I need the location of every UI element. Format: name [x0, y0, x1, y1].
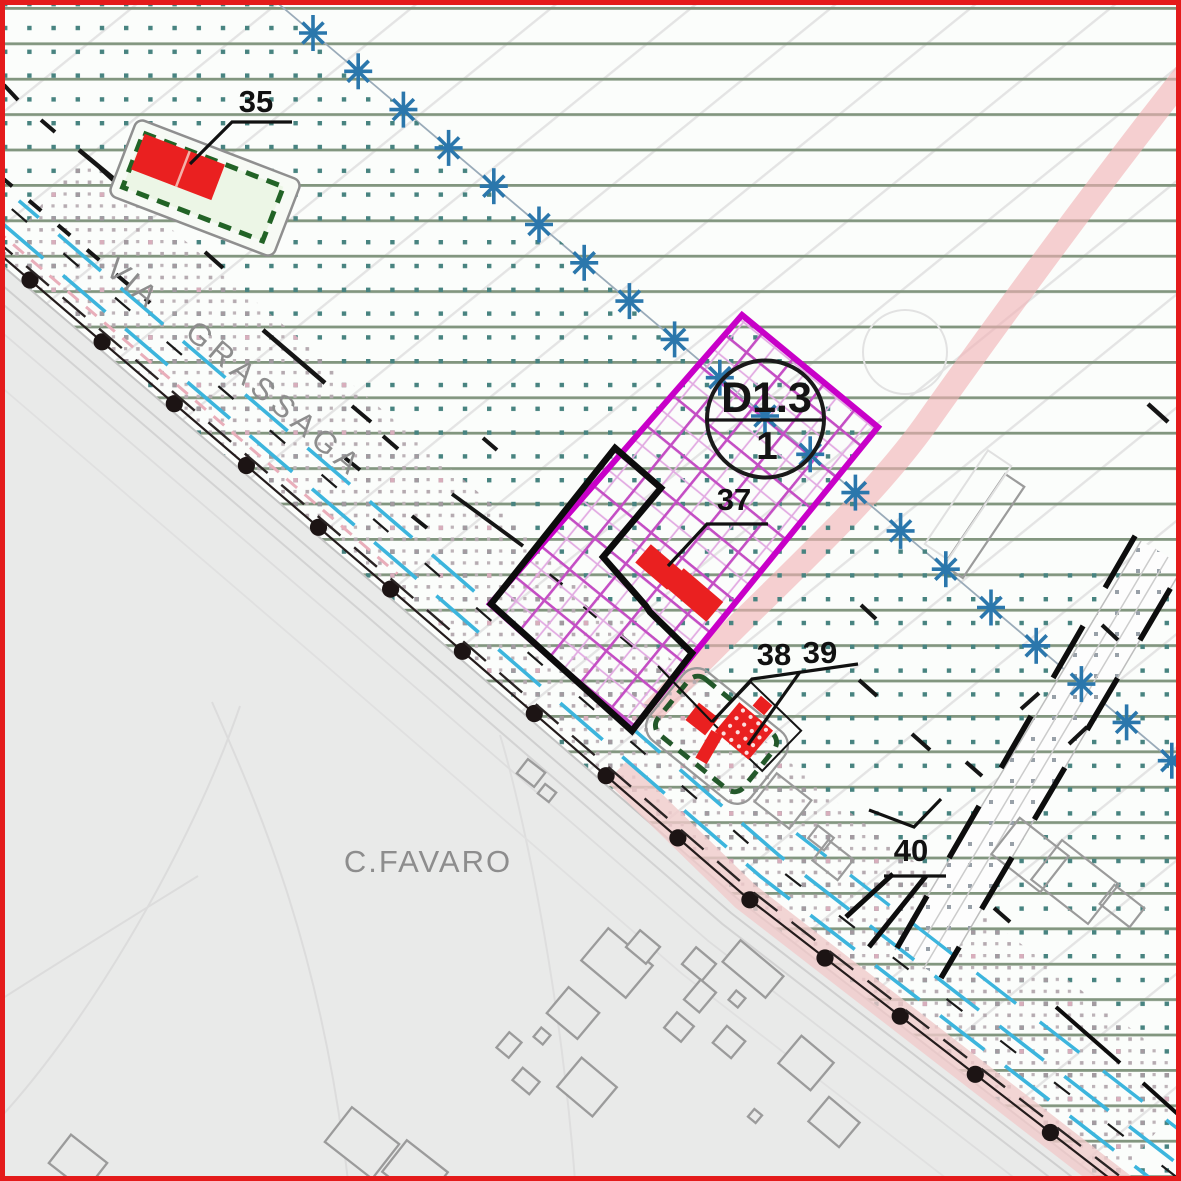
svg-text:35: 35 — [239, 84, 273, 119]
svg-text:39: 39 — [803, 635, 837, 670]
svg-text:40: 40 — [894, 833, 928, 868]
svg-text:38: 38 — [757, 637, 791, 672]
svg-text:37: 37 — [717, 482, 751, 517]
svg-text:1: 1 — [756, 425, 778, 468]
svg-text:C.FAVARO: C.FAVARO — [344, 844, 512, 879]
svg-text:D1.3: D1.3 — [721, 374, 812, 422]
